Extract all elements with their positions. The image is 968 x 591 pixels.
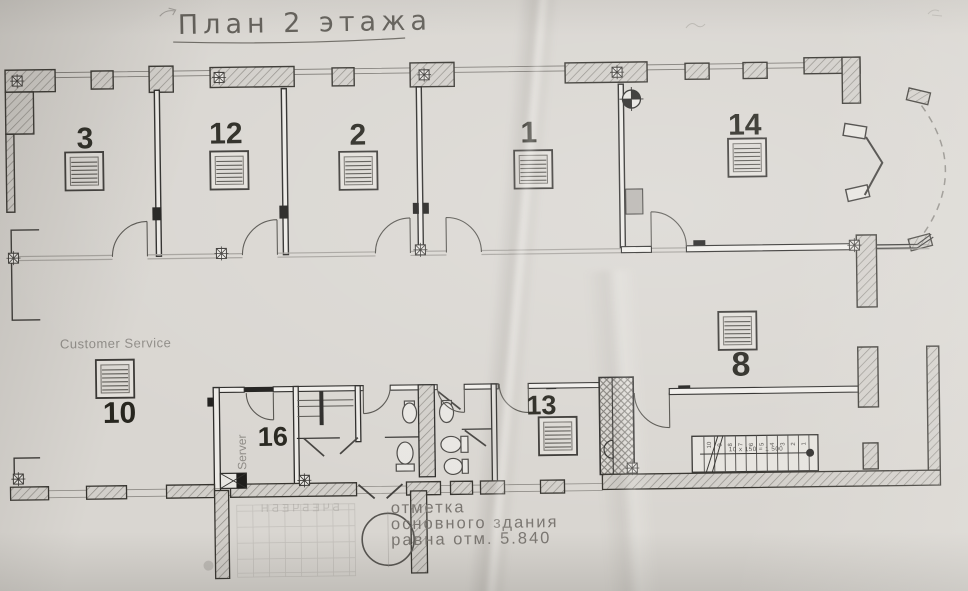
customer-service-label: Customer Service bbox=[60, 335, 171, 351]
xblock-marker bbox=[220, 473, 246, 488]
room-number-8: 8 bbox=[731, 346, 750, 384]
stair-step-number: 10 bbox=[707, 441, 713, 448]
wc-center-wall bbox=[418, 385, 435, 477]
cabinet-symbol bbox=[626, 189, 643, 214]
room-number-10: 10 bbox=[103, 397, 137, 430]
plan-title: План 2 этажа bbox=[178, 6, 433, 41]
ceiling-grille-icon bbox=[718, 311, 756, 349]
floor-plan-photo: 10 x 150 = 1 500 10 9 8 7 6 5 4 3 2 1 bbox=[0, 0, 968, 591]
room-number-16: 16 bbox=[258, 422, 288, 452]
ceiling-grille-icon bbox=[339, 151, 377, 189]
title-group: План 2 этажа bbox=[160, 4, 433, 45]
room-number-3: 3 bbox=[76, 122, 93, 155]
paper-background bbox=[0, 0, 968, 591]
ceiling-grille-icon bbox=[539, 417, 577, 455]
room-number-2: 2 bbox=[349, 119, 366, 152]
ceiling-grille-icon bbox=[65, 152, 103, 190]
note-line-3: равна отм. 5.840 bbox=[391, 529, 551, 549]
ceiling-grille-icon bbox=[210, 151, 248, 189]
room-number-14: 14 bbox=[728, 108, 762, 141]
room-number-13: 13 bbox=[526, 390, 556, 420]
room-number-1: 1 bbox=[520, 116, 537, 149]
toilet-icon bbox=[396, 464, 414, 471]
server-label: Server bbox=[235, 434, 249, 470]
ceiling-grille-icon bbox=[514, 150, 552, 188]
ceiling-grille-icon bbox=[728, 138, 766, 176]
floor-plan-drawing: 10 x 150 = 1 500 10 9 8 7 6 5 4 3 2 1 bbox=[0, 0, 968, 591]
toilet-icon bbox=[461, 436, 468, 452]
staircase: 10 x 150 = 1 500 10 9 8 7 6 5 4 3 2 1 bbox=[692, 435, 818, 473]
room-number-12: 12 bbox=[209, 117, 243, 150]
bleed-through-text: БЧЕБЧЕБН bbox=[258, 502, 340, 515]
lower-left-wall bbox=[215, 490, 230, 578]
shaft-crosshatch bbox=[599, 377, 634, 474]
ceiling-grille-icon bbox=[96, 360, 134, 398]
toilet-icon bbox=[462, 459, 468, 473]
